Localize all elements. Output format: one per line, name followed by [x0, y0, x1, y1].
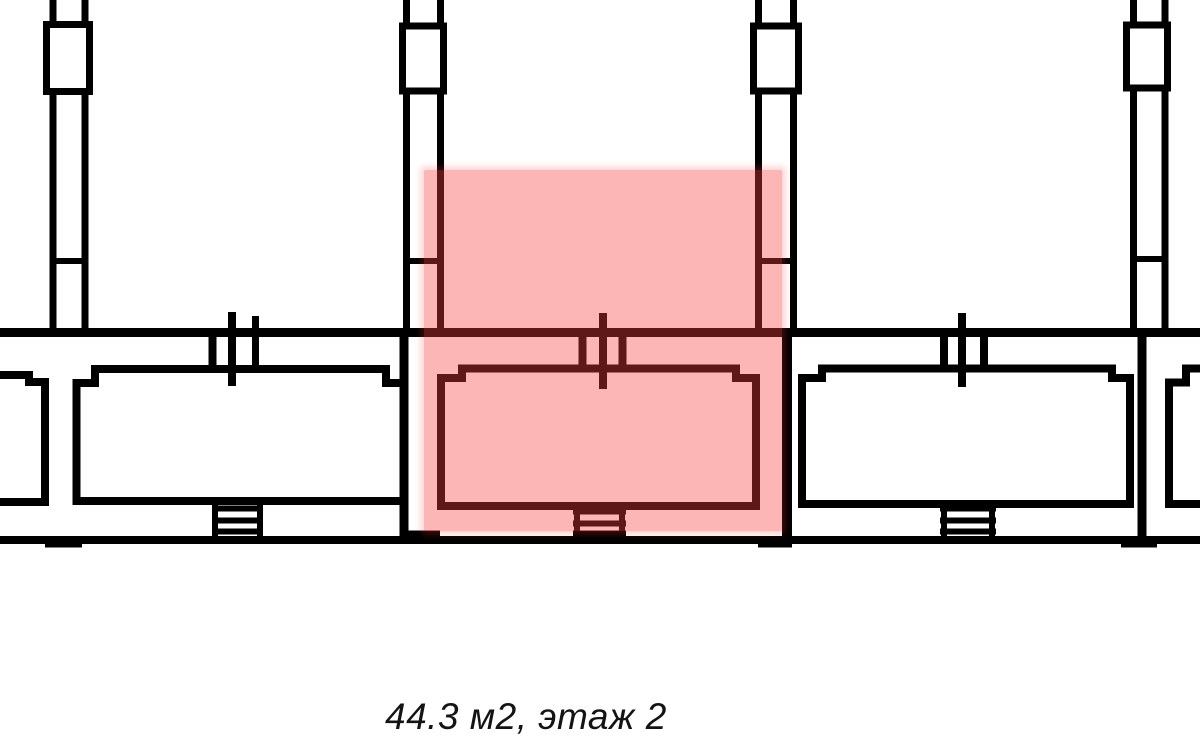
window-symbol	[944, 313, 984, 387]
room-outline	[802, 369, 1130, 505]
room-outline	[1169, 369, 1200, 505]
unit-info-caption: 44.3 м2, этаж 2	[385, 696, 665, 738]
partial-room-right	[1169, 369, 1200, 505]
stairs-rungs	[212, 509, 263, 532]
unit-left[interactable]	[77, 312, 405, 540]
room-outline	[77, 369, 405, 501]
column-cap	[754, 26, 799, 91]
unit-right[interactable]	[802, 313, 1130, 540]
column-cap	[1127, 25, 1168, 88]
stairs-rungs	[940, 509, 996, 532]
column-stub	[53, 0, 85, 24]
column-cap	[47, 25, 90, 92]
column-cap	[403, 26, 444, 91]
room-outline	[0, 375, 45, 502]
window-symbol	[213, 312, 256, 386]
column-shaft	[53, 91, 85, 332]
partial-room-left	[0, 375, 45, 502]
column-stub	[1134, 0, 1166, 25]
column-shaft	[1134, 88, 1166, 332]
selected-unit-highlight[interactable]	[424, 170, 782, 531]
floor-plan-canvas: 44.3 м2, этаж 2	[0, 0, 1200, 745]
structural-column-1	[47, 0, 90, 332]
stairs-symbol	[212, 501, 263, 540]
stairs-symbol	[940, 502, 996, 540]
structural-column-4	[1127, 0, 1168, 332]
